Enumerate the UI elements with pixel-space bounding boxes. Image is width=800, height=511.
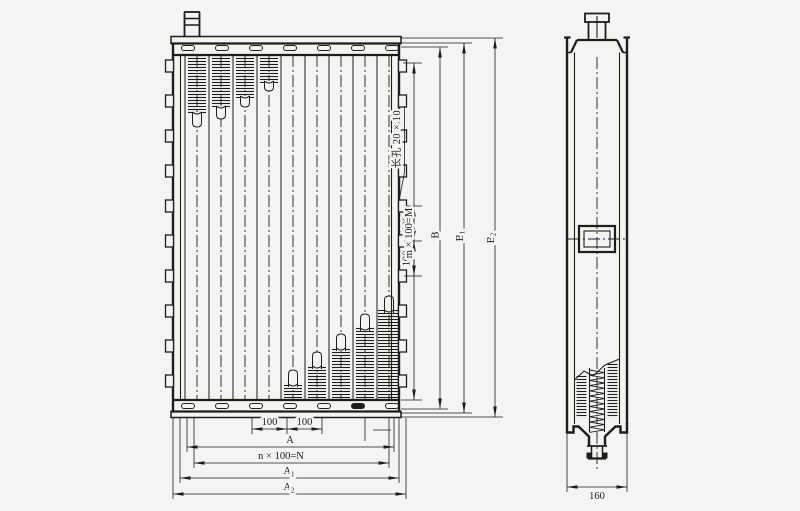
top-header	[171, 37, 401, 56]
mounting-lug	[399, 375, 407, 387]
oval-slot	[284, 404, 297, 409]
oval-slot	[386, 404, 399, 409]
fin-band	[212, 55, 230, 108]
drawing-sheet: 长孔 20 × 10 100 100 m × 100=M B B1 B2	[0, 0, 800, 511]
oval-slot	[352, 404, 365, 409]
dim-label-a: A	[286, 435, 294, 446]
mounting-lug	[166, 270, 174, 282]
mounting-lug	[166, 235, 174, 247]
mounting-lug	[166, 305, 174, 317]
fin-band	[236, 55, 254, 98]
side-view	[564, 14, 630, 471]
dim-horizontal-pitch-right: 100	[297, 417, 313, 428]
mounting-lug	[399, 60, 407, 72]
mounting-lug	[399, 305, 407, 317]
bottom-oval-slots	[182, 404, 399, 409]
mounting-lug	[166, 375, 174, 387]
mounting-lug	[166, 95, 174, 107]
dim-label-a2: A2	[283, 482, 295, 495]
dim-label-a1: A1	[283, 466, 295, 479]
fin-band	[332, 347, 350, 400]
oval-slot	[250, 46, 263, 51]
oval-slot	[182, 404, 195, 409]
mounting-lug	[399, 340, 407, 352]
fin-comb-right	[608, 362, 618, 418]
dimensions-right: 长孔 20 × 10 100 100 m × 100=M B B1 B2	[391, 38, 503, 417]
top-nozzle	[184, 12, 200, 37]
mounting-lug	[399, 95, 407, 107]
note-slot-hole: 长孔 20 × 10	[391, 110, 403, 168]
dim-label-160: 160	[589, 491, 605, 502]
fin-band	[378, 309, 400, 400]
dim-label-b2: B2	[486, 232, 498, 243]
mounting-lug	[166, 165, 174, 177]
dim-label-b: B	[431, 231, 442, 238]
oval-slot	[284, 46, 297, 51]
dimensions-bottom: 100 100 A n × 100=N A1 A2	[173, 417, 406, 499]
mounting-lug	[166, 130, 174, 142]
fin-band	[308, 365, 326, 400]
fin-band	[188, 55, 206, 114]
bottom-header	[171, 400, 401, 418]
oval-slot	[318, 404, 331, 409]
dim-label-n: n × 100=N	[258, 451, 304, 462]
top-oval-slots	[182, 46, 399, 51]
oval-slot	[182, 46, 195, 51]
fin-band	[356, 327, 374, 400]
oval-slot	[386, 46, 399, 51]
oval-slot	[216, 404, 229, 409]
oval-slot	[352, 46, 365, 51]
mounting-lug	[166, 60, 174, 72]
fin-band	[260, 55, 278, 83]
fin-comb-left	[577, 374, 587, 418]
oval-slot	[318, 46, 331, 51]
dim-label-m: m × 100=M	[404, 207, 415, 258]
dim-label-b1: B1	[455, 230, 467, 241]
mounting-lug	[166, 200, 174, 212]
dim-horizontal-pitch-left: 100	[262, 417, 278, 428]
front-view	[166, 12, 407, 418]
finned-tubes-bottom-right	[284, 296, 400, 400]
radiator-technical-drawing: 长孔 20 × 10 100 100 m × 100=M B B1 B2	[0, 0, 800, 511]
mounting-lug	[166, 340, 174, 352]
oval-slot	[250, 404, 263, 409]
oval-slot	[216, 46, 229, 51]
